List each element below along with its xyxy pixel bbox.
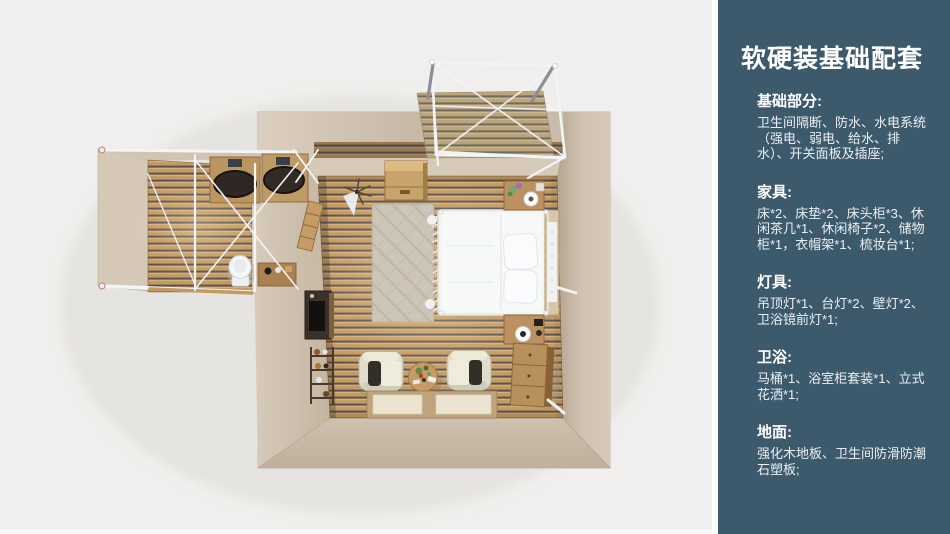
armchair-right: [447, 351, 491, 390]
nightstand-bottom: [504, 315, 544, 344]
section-heading: 地面:: [757, 424, 930, 442]
section-body: 卫生间隔断、防水、水电系统（强电、弱电、给水、排水）、开关面板及插座;: [757, 115, 930, 162]
faucet: [228, 159, 242, 167]
storage-cabinet: [385, 161, 427, 200]
section-furniture: 家具: 床*2、床垫*2、床头柜*3、休闲茶几*1、休闲椅子*2、储物柜*1，衣…: [757, 184, 930, 253]
section-body: 马桶*1、浴室柜套装*1、立式花洒*1;: [757, 371, 930, 402]
section-heading: 基础部分:: [757, 93, 930, 111]
section-body: 床*2、床垫*2、床头柜*3、休闲茶几*1、休闲椅子*2、储物柜*1，衣帽架*1…: [757, 206, 930, 253]
floorplan-render: [0, 0, 712, 534]
panel-sections: 基础部分: 卫生间隔断、防水、水电系统（强电、弱电、给水、排水）、开关面板及插座…: [741, 93, 930, 477]
floorplan-canvas: [0, 0, 712, 534]
pillow: [503, 233, 538, 270]
floor-mats: [367, 391, 497, 418]
section-flooring: 地面: 强化木地板、卫生间防滑防潮石塑板;: [757, 424, 930, 477]
bath-accessory-table: [258, 263, 296, 286]
pillow: [503, 269, 537, 303]
bed: [425, 210, 576, 318]
headboard: [545, 210, 559, 315]
faucet: [276, 157, 290, 165]
section-body: 强化木地板、卫生间防滑防潮石塑板;: [757, 446, 930, 477]
basin: [214, 171, 256, 197]
section-bathroom: 卫浴: 马桶*1、浴室柜套装*1、立式花洒*1;: [757, 349, 930, 402]
area-rug: [372, 204, 434, 322]
section-lighting: 灯具: 吊顶灯*1、台灯*2、壁灯*2、卫浴镜前灯*1;: [757, 274, 930, 327]
nightstand-top: [504, 181, 544, 210]
info-panel: 软硬装基础配套 基础部分: 卫生间隔断、防水、水电系统（强电、弱电、给水、排水）…: [718, 0, 950, 534]
section-body: 吊顶灯*1、台灯*2、壁灯*2、卫浴镜前灯*1;: [757, 296, 930, 327]
drawer-chest: [510, 343, 561, 411]
armchair-left: [359, 352, 403, 391]
section-heading: 灯具:: [757, 274, 930, 292]
bottom-edge: [0, 529, 712, 534]
frame-knob: [99, 283, 105, 289]
section-basics: 基础部分: 卫生间隔断、防水、水电系统（强电、弱电、给水、排水）、开关面板及插座…: [757, 93, 930, 162]
frame-knob: [99, 147, 105, 153]
section-heading: 卫浴:: [757, 349, 930, 367]
slide: 软硬装基础配套 基础部分: 卫生间隔断、防水、水电系统（强电、弱电、给水、排水）…: [0, 0, 950, 534]
section-heading: 家具:: [757, 184, 930, 202]
panel-title: 软硬装基础配套: [741, 44, 930, 74]
bathroom-vanity: [210, 154, 308, 203]
dressing-table: [305, 291, 334, 339]
